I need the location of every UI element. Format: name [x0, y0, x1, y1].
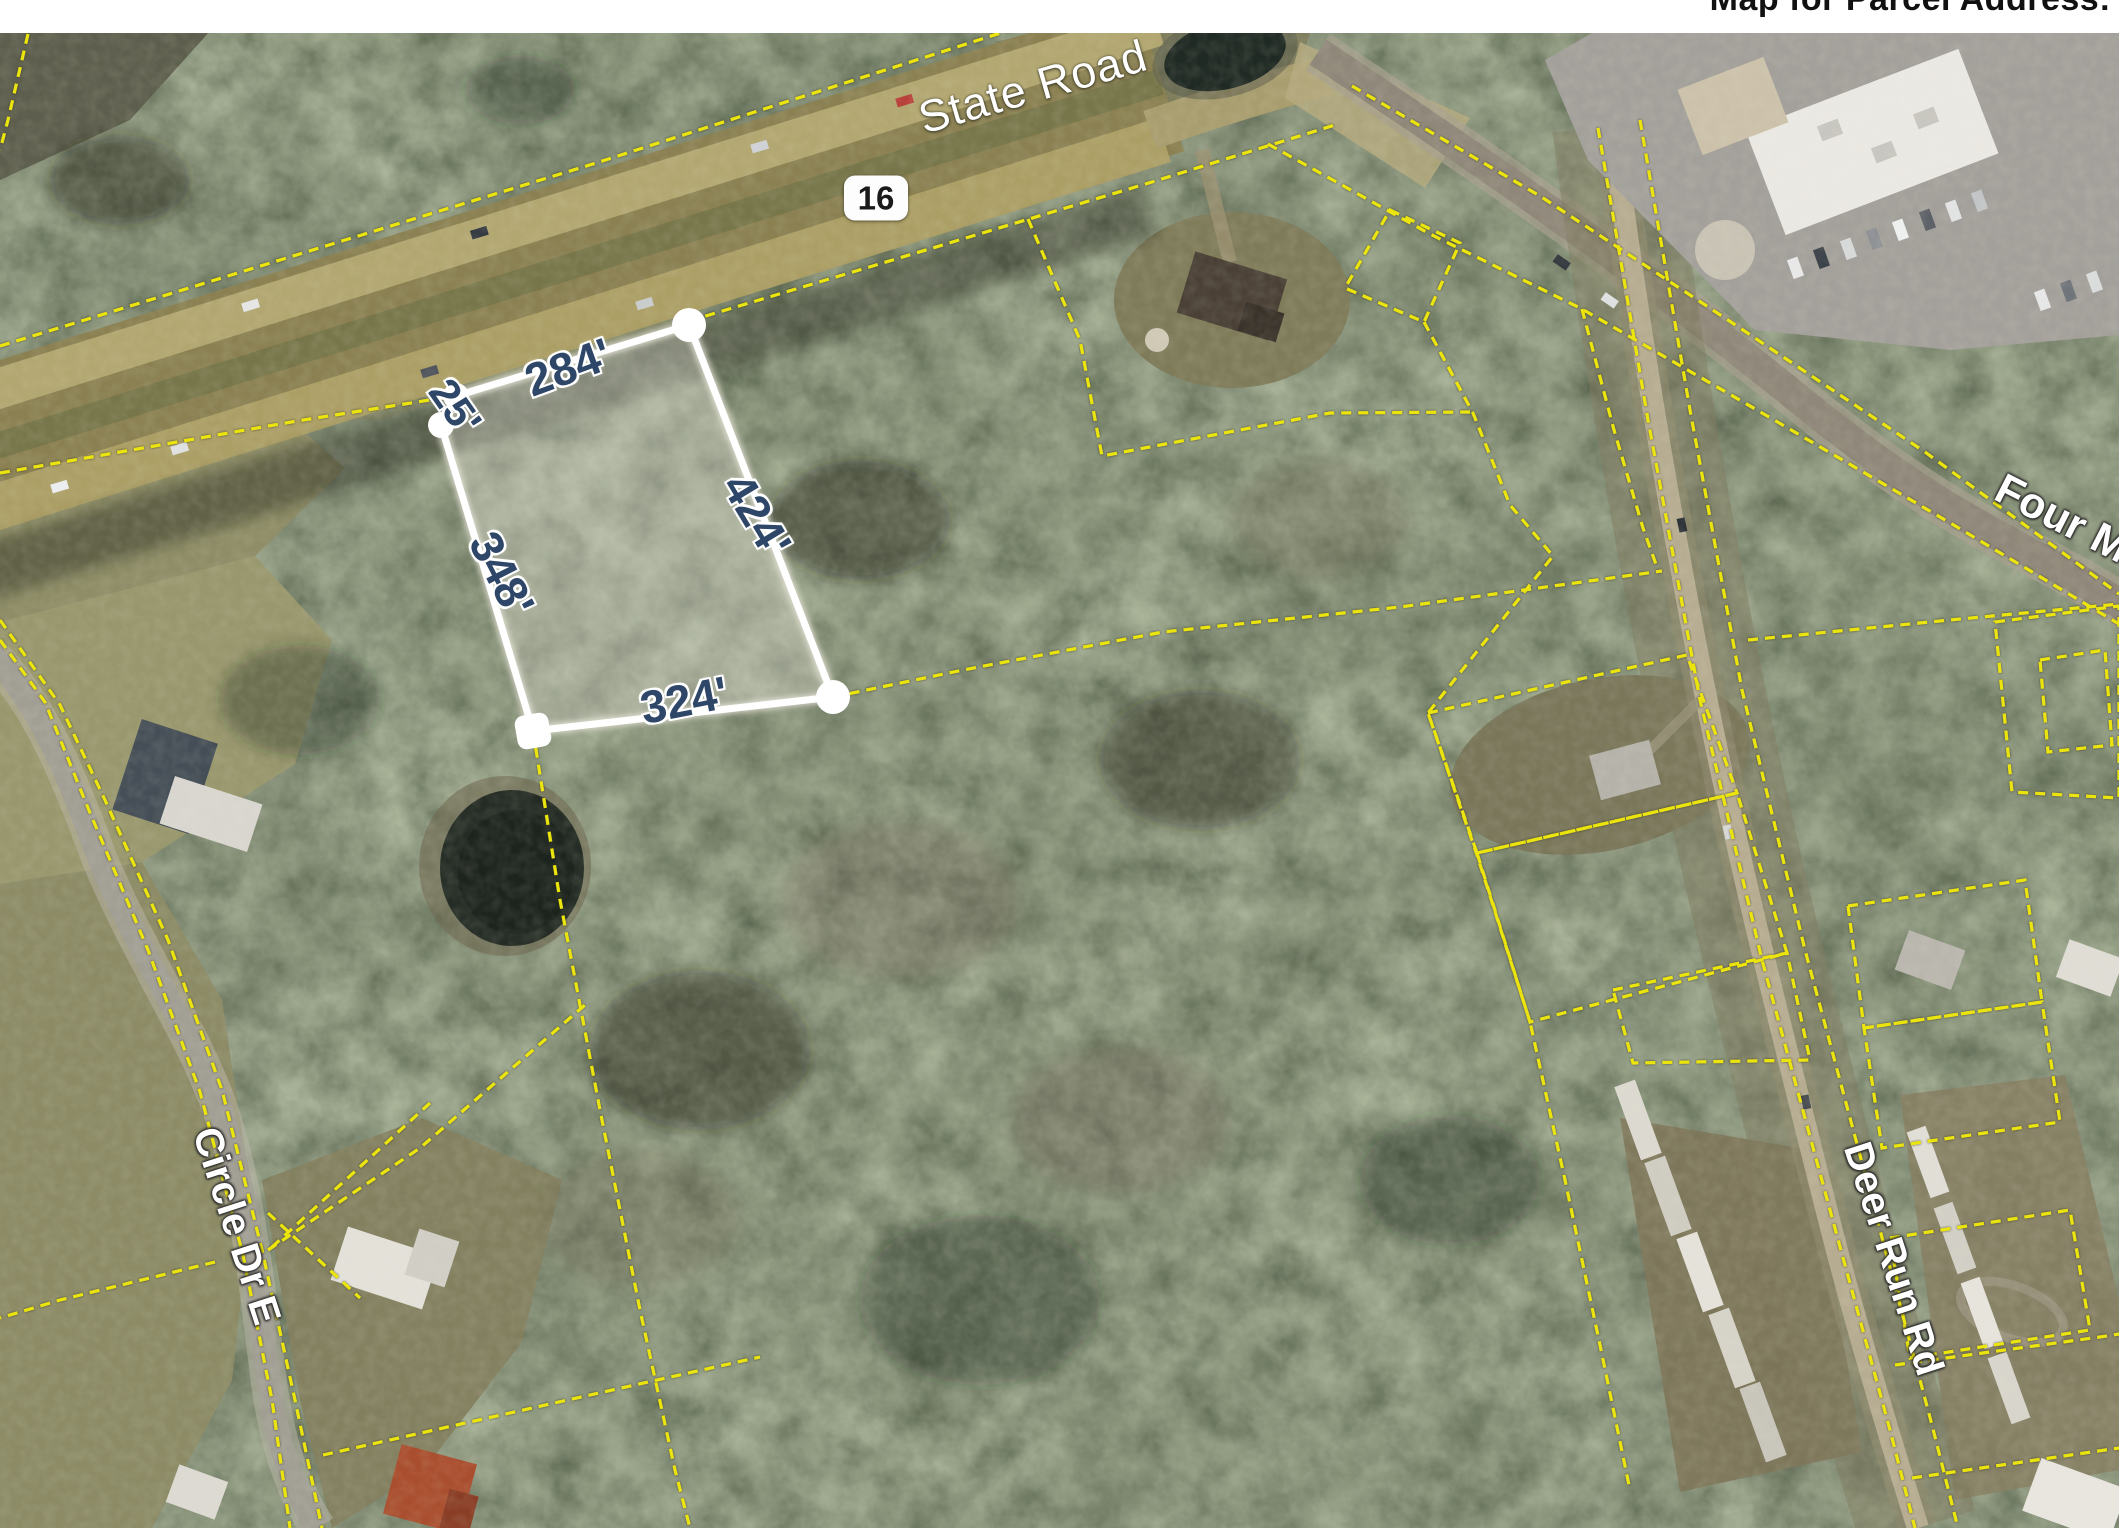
parcel-vertex-marker	[672, 308, 706, 342]
title-bar: Map for Parcel Address:	[0, 0, 2119, 33]
aerial-basemap	[0, 0, 2119, 1528]
route-16-number: 16	[858, 179, 895, 217]
texture-overlay	[0, 0, 2119, 1528]
page-title: Map for Parcel Address:	[1710, 0, 2111, 19]
parcel-vertex-marker	[513, 711, 552, 750]
parcel-map-view[interactable]: State Road 16 Four M Circle Dr E Deer Ru…	[0, 0, 2119, 1528]
parcel-vertex-marker	[816, 680, 850, 714]
route-16-shield: 16	[844, 176, 908, 221]
